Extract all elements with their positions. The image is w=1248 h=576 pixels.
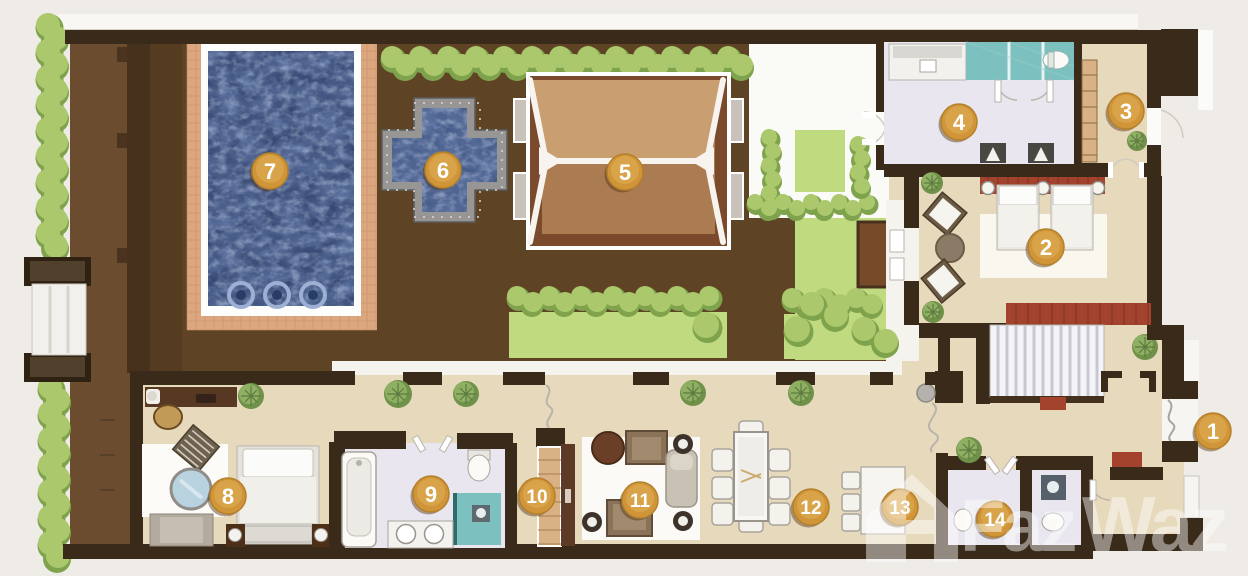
svg-text:4: 4 <box>953 110 966 135</box>
svg-text:2: 2 <box>1040 235 1052 260</box>
svg-text:9: 9 <box>425 482 437 507</box>
svg-text:1: 1 <box>1207 419 1219 444</box>
svg-text:3: 3 <box>1120 99 1132 124</box>
svg-text:11: 11 <box>630 491 651 512</box>
svg-text:6: 6 <box>437 158 449 183</box>
svg-text:8: 8 <box>222 484 234 509</box>
svg-text:Faz: Faz <box>960 484 1075 567</box>
svg-text:Waz: Waz <box>1082 480 1227 568</box>
svg-text:5: 5 <box>619 160 631 185</box>
svg-text:10: 10 <box>526 487 547 508</box>
svg-text:12: 12 <box>800 498 821 519</box>
svg-text:7: 7 <box>264 159 276 184</box>
